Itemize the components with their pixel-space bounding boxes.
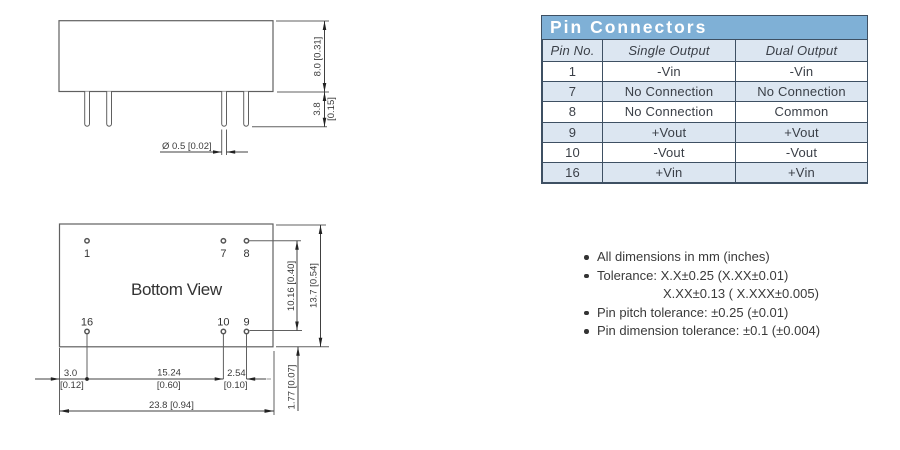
svg-text:2.54: 2.54 [227, 368, 246, 379]
svg-text:16: 16 [81, 317, 93, 329]
svg-text:[0.60]: [0.60] [157, 380, 181, 391]
svg-text:Ø 0.5 [0.02]: Ø 0.5 [0.02] [162, 141, 212, 152]
svg-text:8.0 [0.31]: 8.0 [0.31] [312, 37, 323, 77]
svg-text:9: 9 [243, 317, 249, 329]
svg-text:[0.10]: [0.10] [224, 380, 248, 391]
svg-text:15.24: 15.24 [157, 368, 181, 379]
svg-text:10: 10 [217, 317, 229, 329]
svg-text:Bottom View: Bottom View [131, 280, 223, 299]
svg-text:[0.15]: [0.15] [326, 97, 337, 121]
svg-text:23.8 [0.94]: 23.8 [0.94] [149, 400, 194, 411]
svg-text:7: 7 [220, 248, 226, 260]
svg-text:10.16 [0.40]: 10.16 [0.40] [286, 261, 297, 311]
svg-text:3.0: 3.0 [64, 368, 77, 379]
svg-text:3.8: 3.8 [312, 102, 323, 115]
svg-text:8: 8 [243, 248, 249, 260]
svg-text:1: 1 [84, 248, 90, 260]
svg-text:1.77 [0.07]: 1.77 [0.07] [287, 365, 298, 410]
svg-text:[0.12]: [0.12] [60, 380, 84, 391]
svg-text:13.7 [0.54]: 13.7 [0.54] [309, 263, 320, 308]
